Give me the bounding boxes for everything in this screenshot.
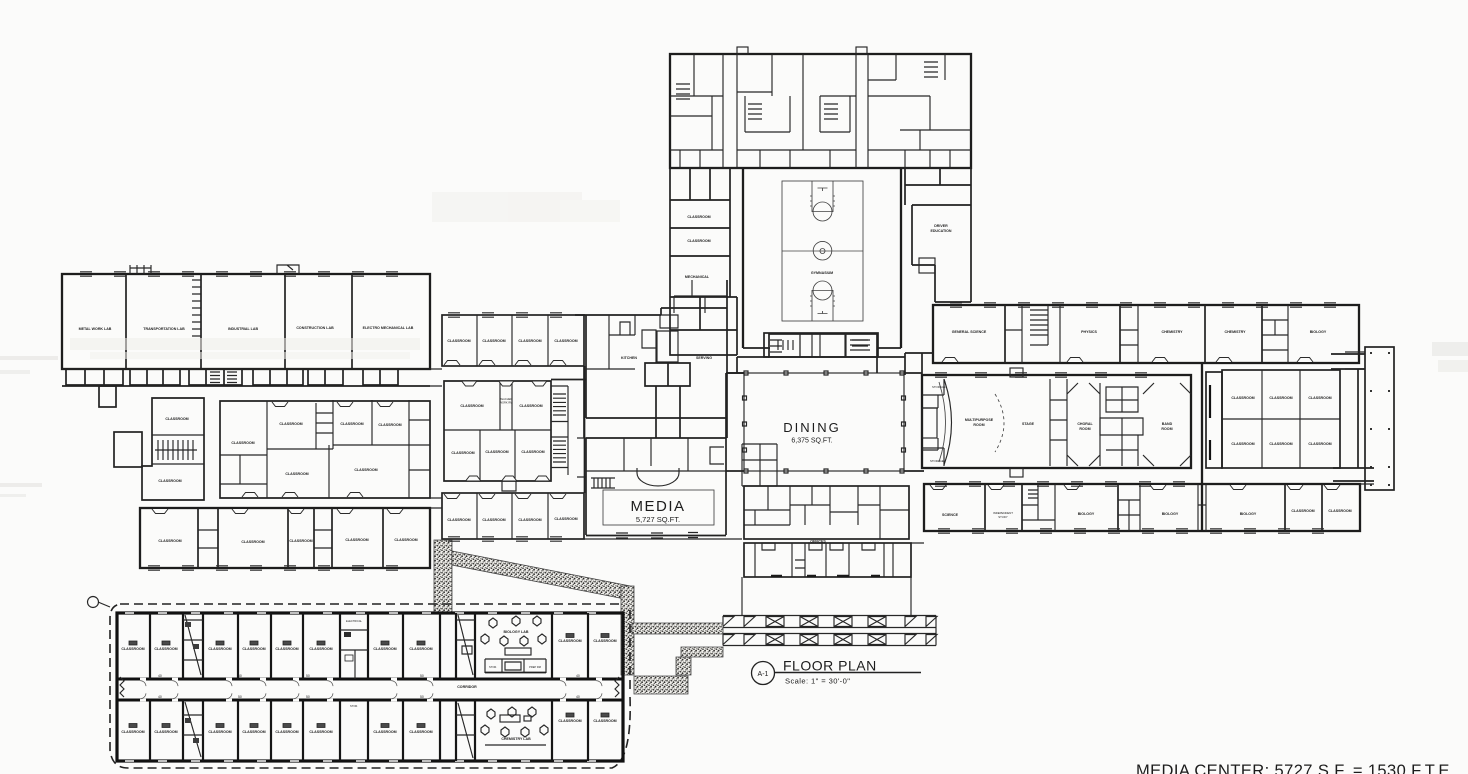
svg-text:MULTIPURPOSE: MULTIPURPOSE — [965, 418, 994, 422]
svg-text:CHEMISTRY: CHEMISTRY — [1224, 330, 1246, 334]
svg-text:CHORAL: CHORAL — [1077, 422, 1093, 426]
svg-text:CLASSROOM: CLASSROOM — [242, 647, 265, 651]
svg-text:CLASSROOM: CLASSROOM — [165, 417, 188, 421]
svg-text:CLASSROOM: CLASSROOM — [558, 719, 581, 723]
svg-text:CLASSROOM: CLASSROOM — [340, 422, 363, 426]
svg-text:CLASSROOM: CLASSROOM — [593, 639, 616, 643]
svg-text:40: 40 — [576, 674, 580, 678]
svg-text:CLASSROOM: CLASSROOM — [345, 538, 368, 542]
svg-text:CLASSROOM: CLASSROOM — [482, 339, 505, 343]
svg-text:TRANSPORTATION LAB: TRANSPORTATION LAB — [143, 327, 185, 331]
svg-text:MECHANICAL: MECHANICAL — [685, 275, 710, 279]
svg-text:ROOM: ROOM — [1161, 427, 1172, 431]
svg-text:40: 40 — [576, 695, 580, 699]
svg-text:CLASSROOM: CLASSROOM — [447, 518, 470, 522]
svg-text:ELECTRICAL: ELECTRICAL — [346, 619, 363, 623]
svg-text:CLASSROOM: CLASSROOM — [231, 441, 254, 445]
svg-text:CLASSROOM: CLASSROOM — [554, 339, 577, 343]
svg-text:CLASSROOM: CLASSROOM — [1231, 396, 1254, 400]
svg-text:CLASSROOM: CLASSROOM — [373, 647, 396, 651]
svg-text:CLASSROOM: CLASSROOM — [485, 450, 508, 454]
svg-text:STUDY: STUDY — [998, 515, 1008, 519]
svg-text:GYMNASIUM: GYMNASIUM — [811, 271, 833, 275]
svg-text:DINING: DINING — [783, 420, 841, 435]
svg-text:CLASSROOM: CLASSROOM — [409, 730, 432, 734]
svg-text:CLASSROOM: CLASSROOM — [285, 472, 308, 476]
svg-text:40: 40 — [158, 695, 162, 699]
svg-text:CLASSROOM: CLASSROOM — [687, 239, 710, 243]
svg-text:DRIVER: DRIVER — [934, 224, 948, 228]
svg-text:CLASSROOM: CLASSROOM — [1308, 442, 1331, 446]
svg-text:CLASSROOM: CLASSROOM — [309, 730, 332, 734]
svg-text:ROOM: ROOM — [1079, 427, 1090, 431]
svg-text:CLASSROOM: CLASSROOM — [275, 730, 298, 734]
svg-text:CLASSROOM: CLASSROOM — [554, 517, 577, 521]
svg-text:CLASSROOM: CLASSROOM — [154, 730, 177, 734]
svg-text:BAND: BAND — [1162, 422, 1173, 426]
svg-text:CLASSROOM: CLASSROOM — [447, 339, 470, 343]
svg-text:CLASSROOM: CLASSROOM — [1291, 509, 1314, 513]
svg-text:BIOLOGY: BIOLOGY — [1078, 512, 1095, 516]
svg-text:CLASSROOM: CLASSROOM — [121, 730, 144, 734]
svg-text:CLASSROOM: CLASSROOM — [354, 468, 377, 472]
svg-text:50: 50 — [238, 695, 242, 699]
svg-text:CLASSROOM: CLASSROOM — [558, 639, 581, 643]
svg-text:CLASSROOM: CLASSROOM — [451, 451, 474, 455]
svg-text:TEACHER: TEACHER — [500, 397, 513, 401]
svg-text:CLASSROOM: CLASSROOM — [521, 450, 544, 454]
svg-text:CLASSROOM: CLASSROOM — [460, 404, 483, 408]
svg-text:CLASSROOM: CLASSROOM — [1231, 442, 1254, 446]
svg-text:CLASSROOM: CLASSROOM — [1308, 396, 1331, 400]
svg-text:CLASSROOM: CLASSROOM — [208, 647, 231, 651]
svg-text:FLOOR PLAN: FLOOR PLAN — [783, 658, 877, 674]
svg-text:CORRIDOR: CORRIDOR — [457, 685, 477, 689]
svg-text:CLASSROOM: CLASSROOM — [518, 339, 541, 343]
svg-text:CLASSROOM: CLASSROOM — [519, 404, 542, 408]
svg-text:CLASSROOM: CLASSROOM — [518, 518, 541, 522]
svg-text:KITCHEN: KITCHEN — [621, 356, 637, 360]
svg-text:ROOM: ROOM — [973, 423, 984, 427]
svg-text:GENERAL SCIENCE: GENERAL SCIENCE — [952, 330, 987, 334]
svg-text:CLASSROOM: CLASSROOM — [154, 647, 177, 651]
svg-text:CLASSROOM: CLASSROOM — [158, 479, 181, 483]
svg-text:CHEMISTRY: CHEMISTRY — [1161, 330, 1183, 334]
svg-text:STORAGE: STORAGE — [932, 385, 946, 389]
svg-text:A-1: A-1 — [758, 671, 769, 678]
svg-text:SCIENCE: SCIENCE — [942, 513, 959, 517]
svg-text:PHYSICS: PHYSICS — [1081, 330, 1097, 334]
svg-text:BIOLOGY: BIOLOGY — [1162, 512, 1179, 516]
svg-text:CHEMISTRY LAB: CHEMISTRY LAB — [501, 737, 531, 741]
svg-text:6,375 SQ.FT.: 6,375 SQ.FT. — [791, 438, 832, 445]
svg-text:WORK RM: WORK RM — [500, 401, 513, 405]
svg-text:INDUSTRIAL LAB: INDUSTRIAL LAB — [228, 327, 258, 331]
svg-text:CLASSROOM: CLASSROOM — [394, 538, 417, 542]
svg-text:CLASSROOM: CLASSROOM — [373, 730, 396, 734]
svg-text:CLASSROOM: CLASSROOM — [241, 540, 264, 544]
svg-text:CLASSROOM: CLASSROOM — [1269, 396, 1292, 400]
svg-text:CLASSROOM: CLASSROOM — [289, 539, 312, 543]
svg-text:MEDIA CENTER: 5727 S.F. = 153: MEDIA CENTER: 5727 S.F. = 1530 F.T.E — [1136, 762, 1450, 774]
svg-text:CLASSROOM: CLASSROOM — [279, 422, 302, 426]
svg-text:50: 50 — [420, 674, 424, 678]
svg-text:40: 40 — [158, 674, 162, 678]
svg-text:50: 50 — [306, 695, 310, 699]
svg-text:PREP RM: PREP RM — [529, 665, 541, 669]
svg-text:50: 50 — [420, 695, 424, 699]
svg-text:50: 50 — [306, 674, 310, 678]
svg-text:STOR.: STOR. — [350, 704, 358, 708]
svg-text:STOR.: STOR. — [489, 665, 497, 669]
svg-text:SERVING: SERVING — [696, 356, 712, 360]
svg-text:CONSTRUCTION LAB: CONSTRUCTION LAB — [296, 326, 334, 330]
svg-text:CLASSROOM: CLASSROOM — [1269, 442, 1292, 446]
svg-text:CLASSROOM: CLASSROOM — [593, 719, 616, 723]
svg-text:CLASSROOM: CLASSROOM — [409, 647, 432, 651]
svg-text:EDUCATION: EDUCATION — [930, 229, 952, 233]
svg-text:Scale: 1" = 30'-0": Scale: 1" = 30'-0" — [785, 677, 850, 686]
svg-text:CLASSROOM: CLASSROOM — [208, 730, 231, 734]
svg-text:CLASSROOM: CLASSROOM — [687, 215, 710, 219]
svg-text:ELECTRO MECHANICAL LAB: ELECTRO MECHANICAL LAB — [363, 326, 414, 330]
svg-text:BIOLOGY LAB: BIOLOGY LAB — [504, 630, 529, 634]
svg-text:5,727 SQ.FT.: 5,727 SQ.FT. — [636, 515, 680, 524]
svg-text:50: 50 — [238, 674, 242, 678]
svg-text:CLASSROOM: CLASSROOM — [378, 423, 401, 427]
svg-text:BIOLOGY: BIOLOGY — [1310, 330, 1327, 334]
svg-text:STORAGE: STORAGE — [930, 459, 944, 463]
svg-text:CLASSROOM: CLASSROOM — [242, 730, 265, 734]
svg-text:MEDIA: MEDIA — [630, 498, 685, 515]
svg-text:CLASSROOM: CLASSROOM — [482, 518, 505, 522]
svg-text:BIOLOGY: BIOLOGY — [1240, 512, 1257, 516]
svg-text:CLASSROOM: CLASSROOM — [158, 539, 181, 543]
svg-text:METAL WORK LAB: METAL WORK LAB — [79, 327, 112, 331]
svg-text:CLASSROOM: CLASSROOM — [309, 647, 332, 651]
svg-text:CLASSROOM: CLASSROOM — [275, 647, 298, 651]
svg-text:CLASSROOM: CLASSROOM — [121, 647, 144, 651]
svg-text:CLASSROOM: CLASSROOM — [1328, 509, 1351, 513]
svg-text:STAGE: STAGE — [1022, 422, 1035, 426]
